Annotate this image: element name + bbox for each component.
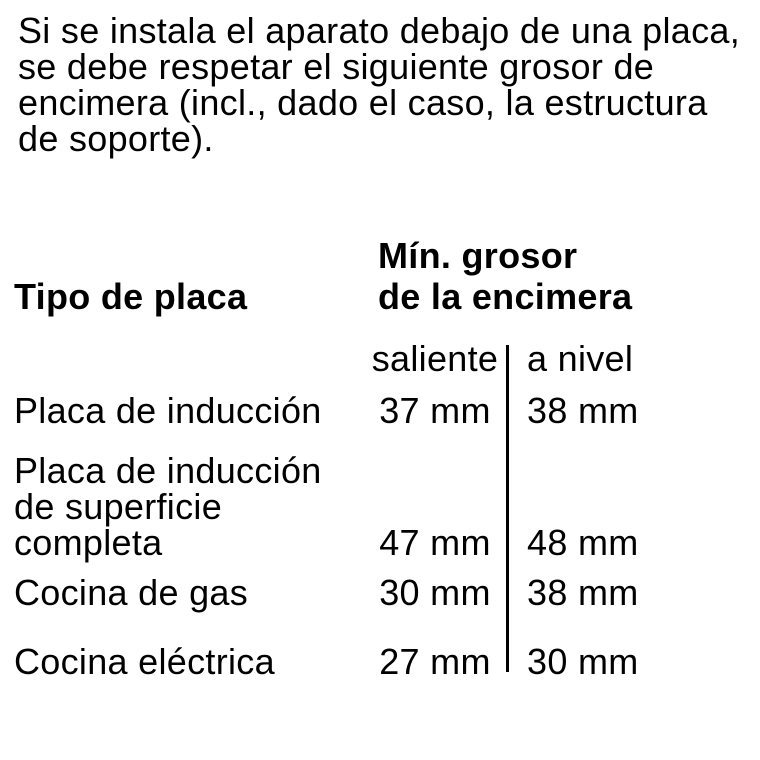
row-label: Cocina eléctrica [0, 644, 363, 680]
row-label: Placa de inducción de superficie complet… [0, 453, 363, 561]
row-label-line: Placa de inducción [14, 453, 363, 489]
intro-paragraph: Si se instala el aparato debajo de una p… [0, 0, 760, 157]
value-a-nivel: 48 mm [507, 525, 760, 561]
value-saliente: 30 mm [363, 575, 507, 611]
value-a-nivel: 38 mm [507, 393, 760, 429]
column-header-min-thickness-line-1: Mín. grosor [378, 235, 760, 276]
subheader-row: saliente a nivel [0, 341, 760, 377]
row-label-line: de superficie [14, 489, 363, 525]
value-saliente: 37 mm [363, 393, 507, 429]
value-saliente: 27 mm [363, 644, 507, 680]
table-row-induction-hob: Placa de inducción 37 mm 38 mm [0, 393, 760, 429]
intro-line-1: Si se instala el aparato debajo de una p… [18, 13, 760, 49]
table-row-gas-cooker: Cocina de gas 30 mm 38 mm [0, 575, 760, 611]
column-header-min-thickness-line-2: de la encimera [378, 276, 760, 317]
row-label: Placa de inducción [0, 393, 363, 429]
intro-line-3: encimera (incl., dado el caso, la estruc… [18, 85, 760, 121]
value-a-nivel: 30 mm [507, 644, 760, 680]
row-label-line: Cocina eléctrica [14, 644, 363, 680]
column-divider-line [506, 345, 509, 672]
subcolumn-header-a-nivel: a nivel [507, 341, 760, 377]
table-row-full-surface-induction-hob: Placa de inducción de superficie complet… [0, 453, 760, 561]
column-header-hob-type: Tipo de placa [0, 276, 378, 317]
table-header-row: Tipo de placa Mín. grosor de la encimera [0, 235, 760, 317]
intro-line-2: se debe respetar el siguiente grosor de [18, 49, 760, 85]
value-a-nivel: 38 mm [507, 575, 760, 611]
table-body: saliente a nivel Placa de inducción 37 m… [0, 341, 760, 680]
row-label: Cocina de gas [0, 575, 363, 611]
table-row-electric-cooker: Cocina eléctrica 27 mm 30 mm [0, 644, 760, 680]
row-label-line: completa [14, 525, 363, 561]
column-header-min-thickness: Mín. grosor de la encimera [378, 235, 760, 317]
value-saliente: 47 mm [363, 525, 507, 561]
intro-line-4: de soporte). [18, 121, 760, 157]
manual-page: Si se instala el aparato debajo de una p… [0, 0, 760, 760]
subcolumn-header-saliente: saliente [363, 341, 507, 377]
row-label-line: Cocina de gas [14, 575, 363, 611]
row-label-line: Placa de inducción [14, 393, 363, 429]
